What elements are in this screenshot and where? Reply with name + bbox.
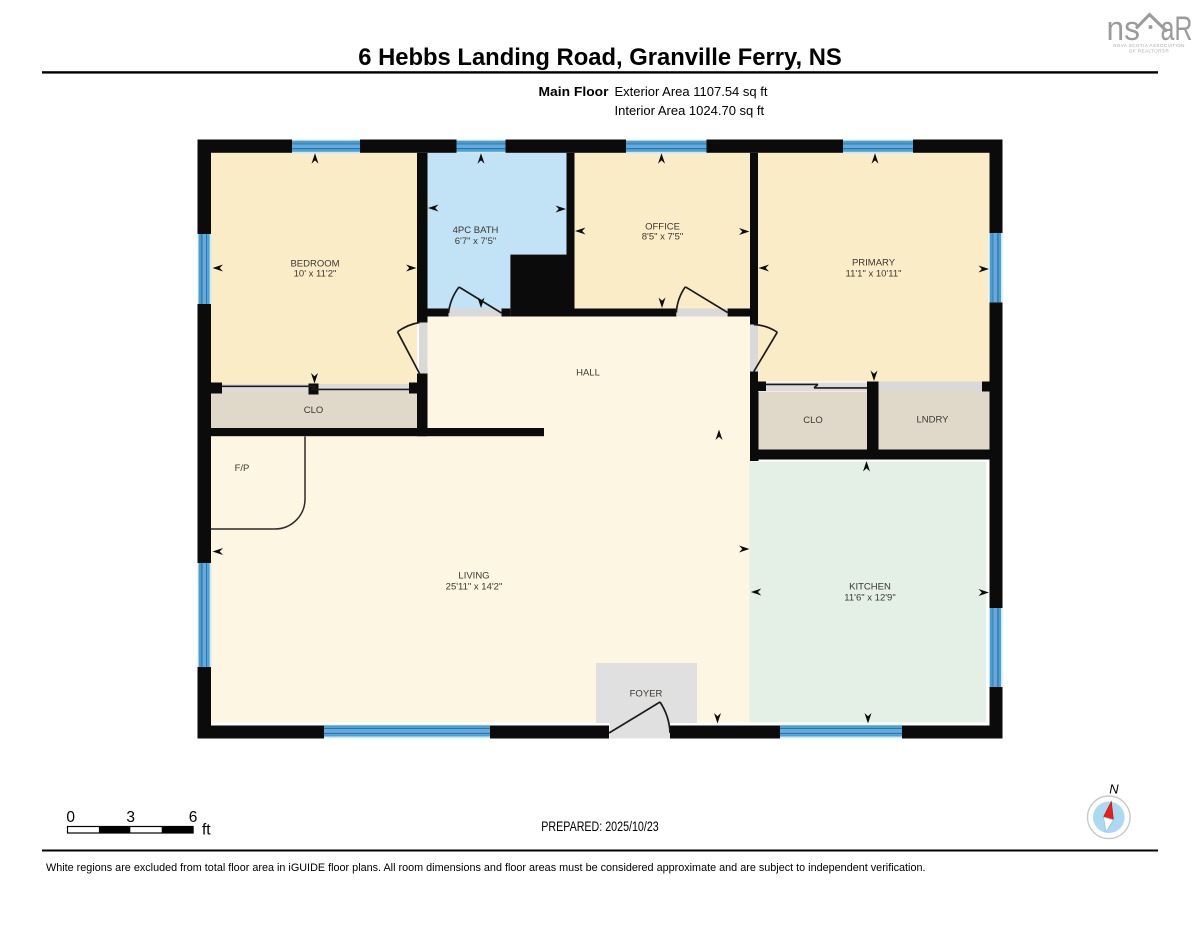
svg-text:11'1" x 10'11": 11'1" x 10'11" xyxy=(846,269,902,280)
svg-text:PRIMARY: PRIMARY xyxy=(852,258,896,269)
svg-text:Interior Area 1024.70 sq ft: Interior Area 1024.70 sq ft xyxy=(615,103,765,118)
svg-text:HALL: HALL xyxy=(576,368,600,379)
svg-text:6 Hebbs Landing Road, Granvill: 6 Hebbs Landing Road, Granville Ferry, N… xyxy=(358,44,842,71)
svg-text:8'5" x 7'5": 8'5" x 7'5" xyxy=(642,232,684,243)
svg-text:Main Floor: Main Floor xyxy=(539,84,609,99)
svg-text:6'7" x 7'5": 6'7" x 7'5" xyxy=(455,236,497,247)
svg-text:N: N xyxy=(1109,782,1119,797)
svg-text:10' x 11'2": 10' x 11'2" xyxy=(294,269,337,280)
svg-text:NOVA SCOTIA ASSOCIATION: NOVA SCOTIA ASSOCIATION xyxy=(1113,43,1185,48)
svg-text:FOYER: FOYER xyxy=(630,689,663,700)
svg-text:11'6" x 12'9": 11'6" x 12'9" xyxy=(844,593,895,604)
svg-text:CLO: CLO xyxy=(304,405,324,416)
svg-text:OF REALTORS®: OF REALTORS® xyxy=(1129,47,1169,53)
svg-text:Exterior Area 1107.54 sq ft: Exterior Area 1107.54 sq ft xyxy=(615,84,768,99)
svg-text:6: 6 xyxy=(189,809,198,826)
svg-text:LIVING: LIVING xyxy=(458,571,489,582)
svg-text:CLO: CLO xyxy=(803,415,823,426)
svg-text:White regions are excluded fro: White regions are excluded from total fl… xyxy=(46,862,926,874)
svg-text:ft: ft xyxy=(202,822,211,839)
svg-text:3: 3 xyxy=(126,809,135,826)
svg-text:LNDRY: LNDRY xyxy=(916,415,949,426)
svg-text:4PC BATH: 4PC BATH xyxy=(453,225,499,236)
svg-text:0: 0 xyxy=(66,809,75,826)
svg-text:F/P: F/P xyxy=(235,463,250,474)
svg-text:PREPARED: 2025/10/23: PREPARED: 2025/10/23 xyxy=(541,819,659,834)
svg-text:25'11" x 14'2": 25'11" x 14'2" xyxy=(446,582,503,593)
svg-text:KITCHEN: KITCHEN xyxy=(849,581,891,592)
